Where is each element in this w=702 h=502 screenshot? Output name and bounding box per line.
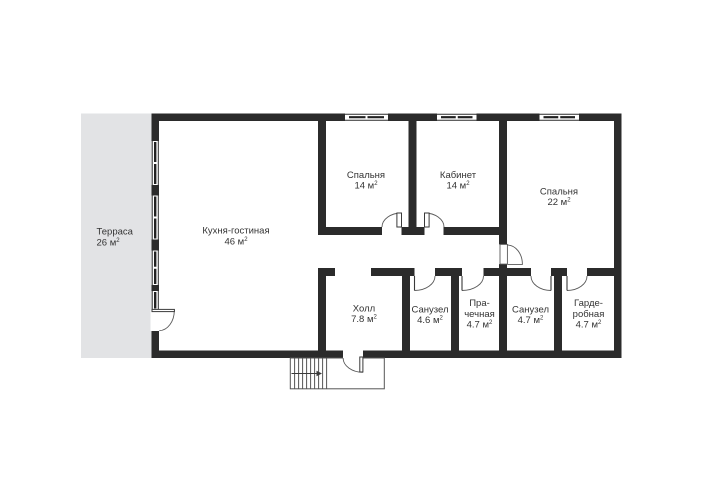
svg-text:Холл: Холл (353, 304, 375, 315)
svg-text:Пра-: Пра- (469, 298, 490, 309)
svg-text:Гарде-: Гарде- (574, 298, 603, 309)
svg-text:Спальня: Спальня (347, 170, 385, 181)
svg-text:Терраса: Терраса (97, 227, 134, 238)
svg-text:Спальня: Спальня (540, 187, 578, 198)
svg-text:Санузел: Санузел (411, 305, 448, 316)
svg-text:Кухня-гостиная: Кухня-гостиная (202, 226, 269, 237)
svg-text:Кабинет: Кабинет (440, 170, 477, 181)
svg-text:Санузел: Санузел (512, 305, 549, 316)
svg-text:робная: робная (573, 309, 605, 320)
svg-text:чечная: чечная (464, 309, 495, 320)
